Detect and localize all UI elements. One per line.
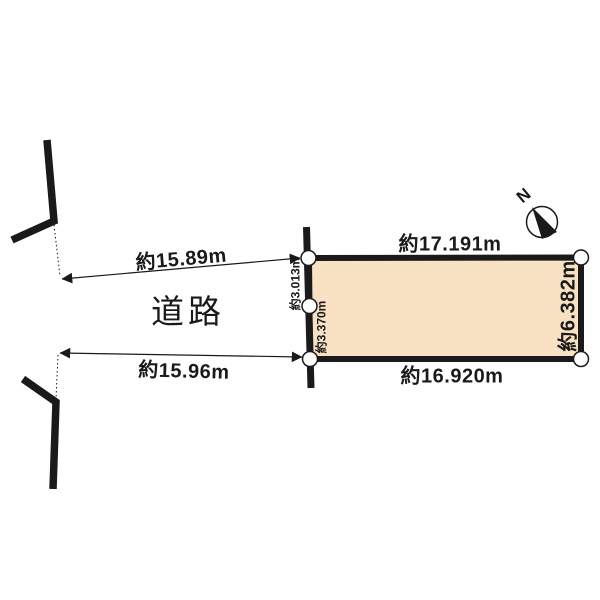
land-plot-diagram: 約17.191m 約16.920m 約6.382m 約3.013m 約3.370… (0, 0, 600, 600)
dimension-right: 約6.382m (552, 260, 581, 351)
road-frontage-lower: 約15.96m (138, 353, 230, 384)
road-label: 道路 (151, 285, 225, 333)
road-edge-upper-left (12, 140, 54, 240)
dotted-tie-lower (56, 355, 58, 399)
plot-parcel (309, 258, 581, 360)
dimension-left-upper: 約3.013m (287, 258, 304, 311)
vertex-dot-bottom-left (303, 352, 318, 367)
dimension-left-lower: 約3.370m (313, 301, 330, 354)
road-edge-lower-left (23, 379, 56, 489)
dimension-top: 約17.191m (399, 228, 502, 257)
dotted-tie-upper (54, 225, 60, 276)
vertex-dot-bottom-right (574, 352, 589, 367)
dimension-bottom: 約16.920m (401, 360, 504, 389)
